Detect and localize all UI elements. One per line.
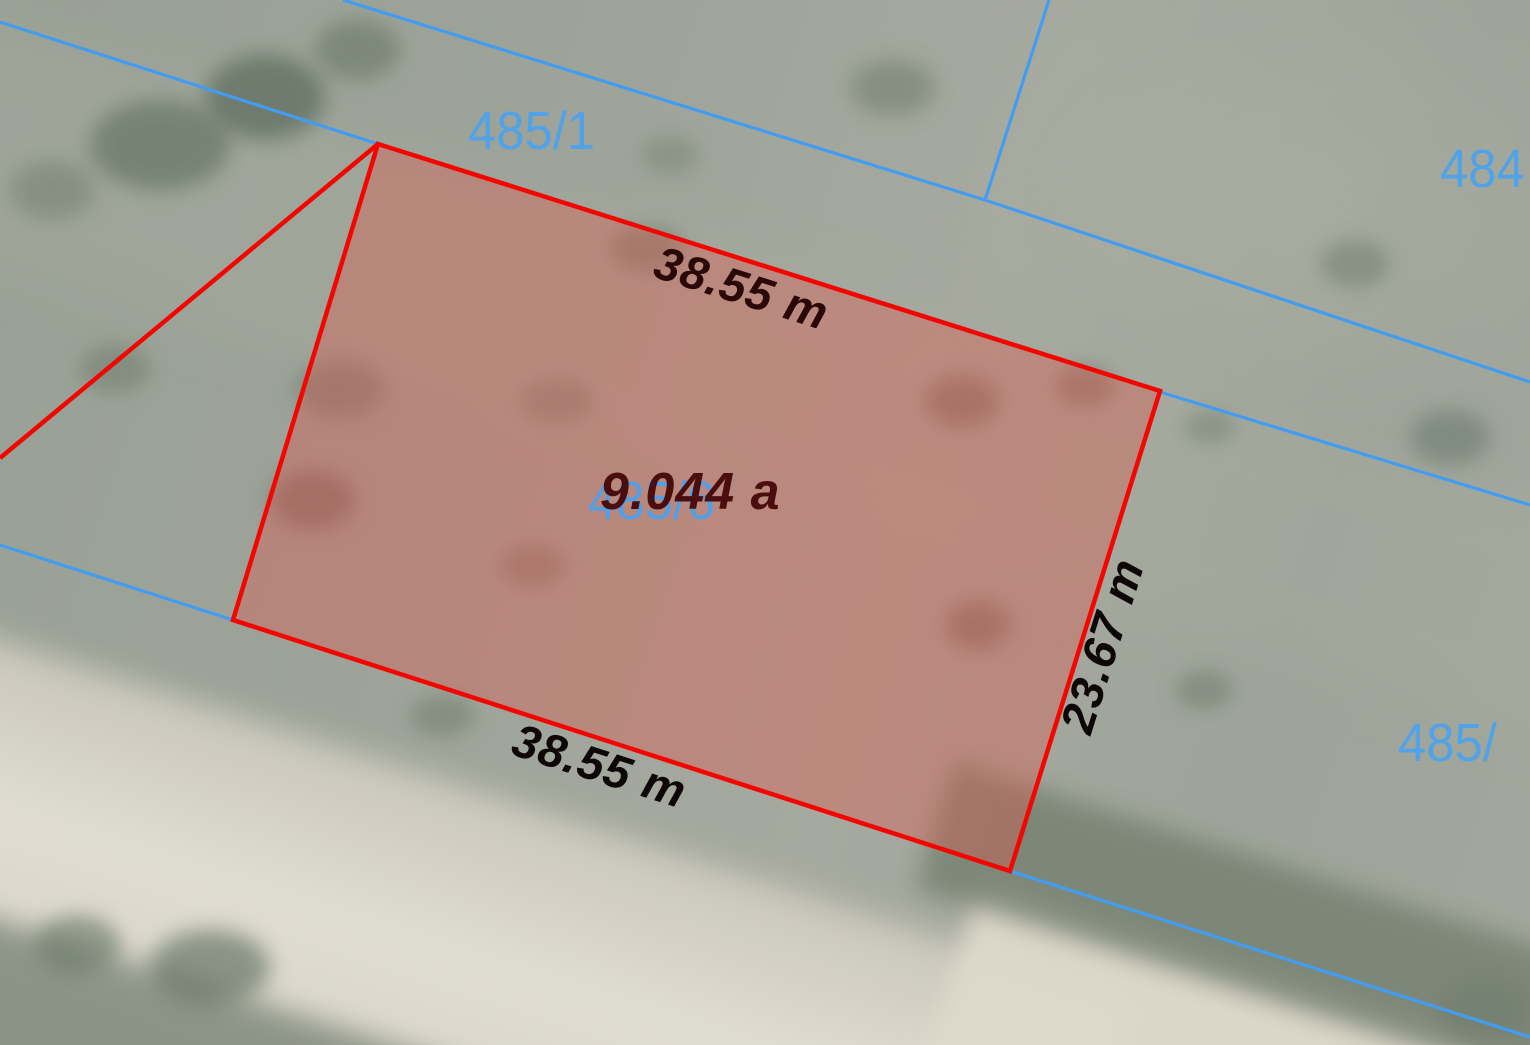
parcel-vector-overlay bbox=[0, 0, 1530, 1045]
parcel-number-label-485-1: 485/1 bbox=[468, 104, 595, 158]
map-canvas[interactable]: 485/1 484 485/ 485/6 9.044 a 38.55 m 38.… bbox=[0, 0, 1530, 1045]
area-label: 9.044 a bbox=[600, 466, 781, 518]
boundary-line-middle-right bbox=[1160, 392, 1530, 505]
parcel-number-label-485-bottom: 485/ bbox=[1398, 716, 1497, 770]
boundary-line-cross bbox=[985, 0, 1049, 200]
parcel-number-label-484: 484 bbox=[1440, 142, 1525, 196]
boundary-line-upper-left bbox=[0, 22, 378, 144]
